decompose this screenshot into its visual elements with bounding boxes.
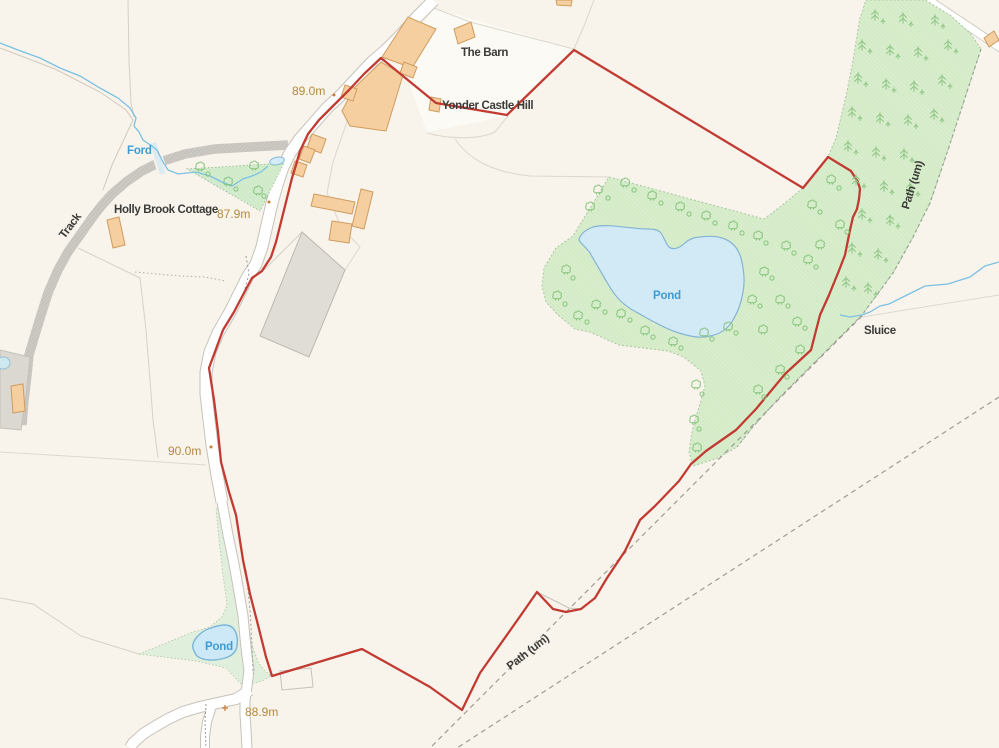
svg-text:89.0m: 89.0m [292,84,325,98]
svg-text:Yonder Castle Hill: Yonder Castle Hill [442,100,533,112]
svg-text:87.9m: 87.9m [217,207,250,221]
svg-text:Pond: Pond [205,641,233,653]
svg-text:88.9m: 88.9m [245,705,278,719]
svg-text:Holly Brook Cottage: Holly Brook Cottage [114,204,218,216]
svg-text:Pond: Pond [653,290,681,302]
svg-text:90.0m: 90.0m [168,444,201,458]
svg-text:Ford: Ford [127,145,152,157]
svg-text:The Barn: The Barn [461,47,508,59]
svg-text:Sluice: Sluice [864,325,896,337]
